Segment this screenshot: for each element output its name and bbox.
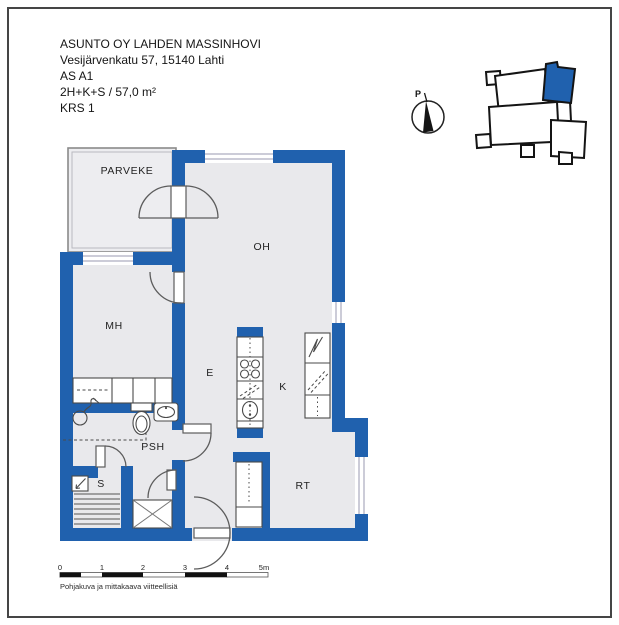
window-living-room (205, 150, 273, 163)
balcony-outline (68, 148, 176, 252)
scale-tick-2: 2 (141, 563, 145, 572)
label-utility-room: RT (295, 480, 310, 492)
label-hallway: E (206, 367, 214, 379)
site-plan-keymap (476, 62, 586, 164)
scale-bar: 0 1 2 3 4 5m (58, 563, 269, 578)
scale-tick-4: 4 (225, 563, 229, 572)
compass-icon: P (412, 89, 444, 133)
scale-tick-3: 3 (183, 563, 187, 572)
bedroom-wardrobes (73, 378, 172, 403)
kitchen-counter-left (237, 337, 263, 428)
disclaimer-caption: Pohjakuva ja mittakaava viitteellisiä (60, 582, 178, 591)
label-living-room: OH (254, 241, 271, 253)
scale-tick-1: 1 (100, 563, 104, 572)
washing-machine-reservation (133, 500, 172, 528)
window-kitchen-side (332, 302, 345, 323)
north-label: P (415, 89, 421, 99)
hall-closet (236, 462, 262, 527)
floorplan-drawing: ASUNTO OY LAHDEN MASSINHOVI Vesijärvenka… (0, 0, 619, 625)
apartment-layout: 2H+K+S / 57,0 m² (60, 85, 156, 99)
sauna-bench-lines (74, 494, 120, 524)
building-name: ASUNTO OY LAHDEN MASSINHOVI (60, 37, 261, 51)
header-block: ASUNTO OY LAHDEN MASSINHOVI Vesijärvenka… (60, 37, 261, 115)
label-balcony: PARVEKE (101, 165, 154, 177)
floorplan-page: ASUNTO OY LAHDEN MASSINHOVI Vesijärvenka… (0, 0, 619, 625)
window-bedroom (83, 252, 133, 265)
label-sauna: S (97, 478, 105, 490)
apartment-id: AS A1 (60, 69, 94, 83)
kitchen-counter-right (305, 333, 330, 418)
label-kitchen: K (279, 381, 287, 393)
scale-tick-5m: 5m (259, 563, 269, 572)
label-washroom: PSH (141, 441, 164, 453)
window-utility-room (355, 457, 368, 514)
sauna-stove-icon (72, 476, 88, 491)
floor-number: KRS 1 (60, 101, 95, 115)
scale-tick-0: 0 (58, 563, 62, 572)
washbasin-icon (154, 403, 178, 421)
toilet-icon (131, 403, 152, 435)
label-bedroom: MH (105, 320, 123, 332)
street-address: Vesijärvenkatu 57, 15140 Lahti (60, 53, 224, 67)
highlighted-unit (543, 62, 575, 103)
